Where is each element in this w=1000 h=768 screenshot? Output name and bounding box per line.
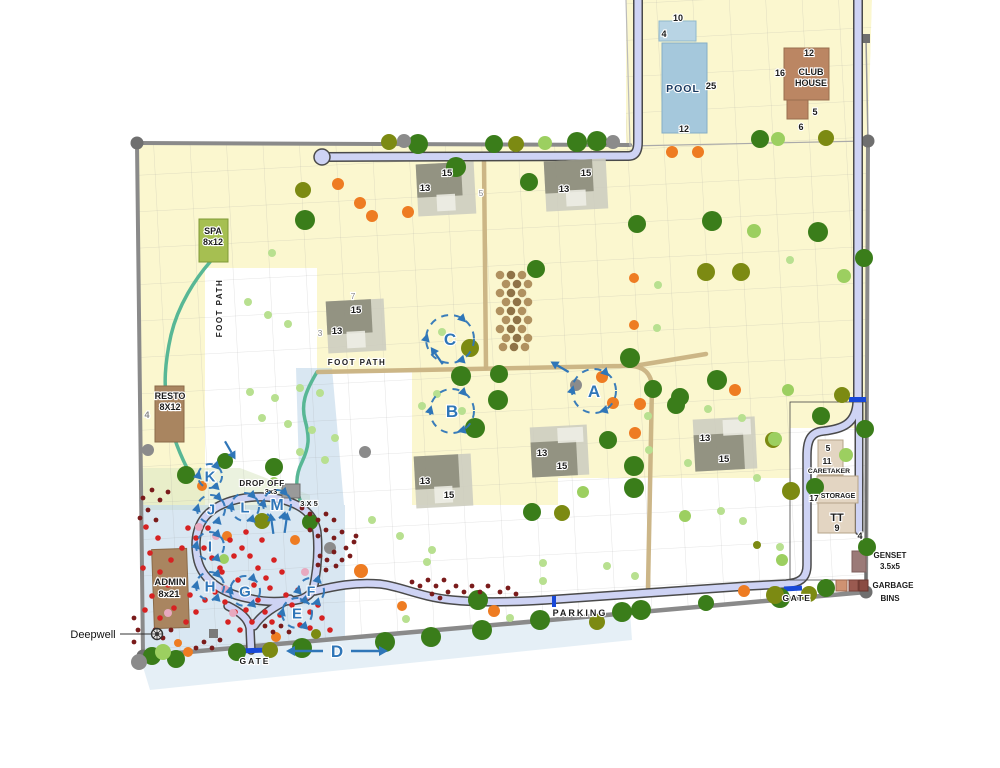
shrub-maroon xyxy=(438,596,443,601)
tree-pg xyxy=(258,414,266,422)
tree-pg xyxy=(717,507,725,515)
tree-dg xyxy=(472,620,492,640)
site-plan-map: SPA8x12RESTO8X124ADMIN8x21POOL1042512121… xyxy=(0,0,1000,768)
label-club: CLUB xyxy=(799,67,824,77)
shrub-maroon xyxy=(434,584,439,589)
shrub-maroon xyxy=(418,584,423,589)
tree-dg xyxy=(530,610,550,630)
tree-dg xyxy=(808,222,828,242)
tree-dg xyxy=(599,431,617,449)
shrub-red xyxy=(205,525,211,531)
tree-pg xyxy=(321,456,329,464)
label-13: 13 xyxy=(700,433,711,444)
gate-bar xyxy=(849,397,866,402)
tree-or xyxy=(692,146,704,158)
tree-ol xyxy=(766,586,784,604)
tree-or xyxy=(629,320,639,330)
tree-dg xyxy=(817,579,835,597)
label-3: 3 xyxy=(318,328,323,338)
shrub-maroon xyxy=(263,624,268,629)
nursery-plant xyxy=(521,343,530,352)
tree-pg xyxy=(644,412,652,420)
tree-lg xyxy=(839,448,853,462)
shrub-maroon xyxy=(325,558,330,563)
shrub-maroon xyxy=(308,512,313,517)
shrub-red xyxy=(319,615,325,621)
building-clubhouse-annex xyxy=(787,100,808,119)
tree-ol xyxy=(782,482,800,500)
tree-ol xyxy=(732,263,750,281)
shrub-maroon xyxy=(442,578,447,583)
tree-pg xyxy=(428,546,436,554)
tree-or xyxy=(629,427,641,439)
tree-or xyxy=(629,273,639,283)
shrub-red xyxy=(243,607,249,613)
tree-dg xyxy=(490,365,508,383)
shrub-maroon xyxy=(287,630,292,635)
shrub-red xyxy=(307,625,313,631)
tree-ol xyxy=(295,182,311,198)
shrub-maroon xyxy=(146,508,151,513)
shrub-pink xyxy=(229,609,237,617)
shrub-red xyxy=(168,557,174,563)
nursery-plant xyxy=(502,316,511,325)
shrub-red xyxy=(249,619,255,625)
label-3-5x5: 3.5x5 xyxy=(880,562,901,571)
tree-pg xyxy=(284,420,292,428)
label-25: 25 xyxy=(706,81,717,92)
tree-pg xyxy=(653,324,661,332)
boundary-node xyxy=(862,135,875,148)
nursery-plant xyxy=(513,334,522,343)
label-house: HOUSE xyxy=(795,78,827,88)
label-caretaker: CARETAKER xyxy=(808,468,850,475)
tree-dg xyxy=(488,390,508,410)
marker-letter-I: I xyxy=(208,538,212,555)
label-gate: GATE xyxy=(240,656,271,666)
foot-path xyxy=(484,160,486,368)
label-13: 13 xyxy=(420,183,431,194)
shrub-maroon xyxy=(430,592,435,597)
shrub-red xyxy=(327,627,333,633)
nursery-plant xyxy=(507,289,516,298)
label-7: 7 xyxy=(351,291,356,301)
shrub-red xyxy=(142,607,148,613)
nursery-plant xyxy=(496,325,505,334)
shrub-maroon xyxy=(446,590,451,595)
shrub-maroon xyxy=(210,646,215,651)
label-15: 15 xyxy=(351,305,362,316)
tree-dg xyxy=(295,210,315,230)
tree-gy xyxy=(397,134,411,148)
label-4: 4 xyxy=(661,29,666,39)
label-15: 15 xyxy=(719,454,730,465)
label-8x12: 8X12 xyxy=(159,402,180,412)
label-genset: GENSET xyxy=(874,551,907,560)
tree-lg xyxy=(837,269,851,283)
shrub-maroon xyxy=(308,528,313,533)
shrub-maroon xyxy=(340,558,345,563)
shrub-maroon xyxy=(332,536,337,541)
tree-pg xyxy=(458,407,466,415)
shrub-red xyxy=(147,550,153,556)
house-porch xyxy=(346,331,365,349)
tree-pg xyxy=(704,405,712,413)
nursery-plant xyxy=(524,298,533,307)
tree-pg xyxy=(264,311,272,319)
nursery-plant xyxy=(524,280,533,289)
tree-or xyxy=(174,639,182,647)
shrub-maroon xyxy=(169,628,174,633)
tree-pg xyxy=(396,532,404,540)
marker-letter-F: F xyxy=(307,583,316,599)
shrub-maroon xyxy=(410,580,415,585)
shrub-red xyxy=(171,605,177,611)
shrub-maroon xyxy=(279,624,284,629)
nursery-plant xyxy=(513,316,522,325)
marker-letter-J: J xyxy=(207,501,215,518)
site-plan-svg: SPA8x12RESTO8X124ADMIN8x21POOL1042512121… xyxy=(0,0,1000,768)
shrub-maroon xyxy=(324,568,329,573)
tree-dg xyxy=(698,595,714,611)
tree-dg xyxy=(702,211,722,231)
shrub-maroon xyxy=(318,554,323,559)
shrub-maroon xyxy=(498,590,503,595)
tree-pg xyxy=(684,459,692,467)
shrub-maroon xyxy=(132,640,137,645)
tree-lg xyxy=(538,136,552,150)
label-parking: PARKING xyxy=(553,608,608,618)
tree-gy xyxy=(131,654,147,670)
tree-lg xyxy=(577,486,589,498)
shrub-maroon xyxy=(218,638,223,643)
tree-or xyxy=(397,601,407,611)
label-12: 12 xyxy=(679,124,689,134)
tree-lg xyxy=(771,132,785,146)
shrub-red xyxy=(247,553,253,559)
shrub-maroon xyxy=(352,540,357,545)
shrub-red xyxy=(255,597,261,603)
shrub-red xyxy=(225,619,231,625)
marker-letter-C: C xyxy=(444,330,456,349)
tree-dg xyxy=(451,366,471,386)
label-foot-path: FOOT PATH xyxy=(215,279,224,338)
label-gate: GATE xyxy=(783,593,812,603)
shrub-red xyxy=(271,557,277,563)
tree-or xyxy=(354,564,368,578)
label-deepwell: Deepwell xyxy=(70,629,115,641)
shrub-maroon xyxy=(138,516,143,521)
shrub-maroon xyxy=(332,518,337,523)
shrub-red xyxy=(149,593,155,599)
label-spa: SPA xyxy=(204,226,222,236)
tree-dg xyxy=(667,396,685,414)
label-4: 4 xyxy=(857,531,862,541)
label-bins: BINS xyxy=(880,594,900,603)
tree-pg xyxy=(296,384,304,392)
tree-dg xyxy=(707,370,727,390)
label-10: 10 xyxy=(673,13,683,23)
label-garbage: GARBAGE xyxy=(873,581,915,590)
label-15: 15 xyxy=(442,168,453,179)
label-8x12: 8x12 xyxy=(203,237,223,247)
tree-pg xyxy=(539,577,547,585)
nursery-plant xyxy=(510,343,519,352)
shrub-red xyxy=(239,545,245,551)
marker-letter-D: D xyxy=(331,642,343,661)
shrub-red xyxy=(222,599,228,605)
marker-letter-L: L xyxy=(240,499,249,516)
label-pool: POOL xyxy=(666,83,700,95)
tree-dg xyxy=(465,418,485,438)
tree-ol xyxy=(508,136,524,152)
tree-dg xyxy=(587,131,607,151)
tree-lg xyxy=(776,554,788,566)
tree-pg xyxy=(402,615,410,623)
label-resto: RESTO xyxy=(155,391,186,401)
shrub-maroon xyxy=(316,563,321,568)
shrub-maroon xyxy=(202,640,207,645)
label-5: 5 xyxy=(826,443,831,453)
shrub-maroon xyxy=(462,590,467,595)
nursery-plant xyxy=(502,298,511,307)
tree-pg xyxy=(776,543,784,551)
shrub-maroon xyxy=(166,490,171,495)
tree-dg xyxy=(375,632,395,652)
shrub-maroon xyxy=(158,498,163,503)
tree-dg xyxy=(485,135,503,153)
tree-or xyxy=(634,398,646,410)
nursery-plant xyxy=(507,325,516,334)
tree-dg xyxy=(856,420,874,438)
nursery-plant xyxy=(518,307,527,316)
shrub-red xyxy=(193,535,199,541)
parking-tick xyxy=(552,596,556,607)
tree-ol xyxy=(554,505,570,521)
nursery-plant xyxy=(518,289,527,298)
shrub-red xyxy=(251,582,257,588)
tree-gy xyxy=(606,135,620,149)
tree-pg xyxy=(296,448,304,456)
house-porch xyxy=(557,427,583,443)
road-culdesac xyxy=(314,149,330,165)
shrub-red xyxy=(219,569,225,575)
label-8x21: 8x21 xyxy=(158,589,180,600)
shrub-red xyxy=(263,575,269,581)
tree-ol xyxy=(834,387,850,403)
tree-pg xyxy=(786,256,794,264)
shrub-red xyxy=(283,592,289,598)
nursery-plant xyxy=(513,298,522,307)
tree-pg xyxy=(244,298,252,306)
tree-ol xyxy=(461,339,479,357)
shrub-red xyxy=(269,619,275,625)
tree-pg xyxy=(738,414,746,422)
shrub-maroon xyxy=(354,534,359,539)
shrub-pink xyxy=(164,609,172,617)
building-garbage-3 xyxy=(859,580,868,591)
building-garbage-2 xyxy=(849,580,858,591)
label-9: 9 xyxy=(834,523,839,533)
tree-or xyxy=(354,197,366,209)
nursery-plant xyxy=(518,325,527,334)
tree-ol xyxy=(311,629,321,639)
tree-pg xyxy=(739,517,747,525)
tree-ol xyxy=(381,134,397,150)
shrub-red xyxy=(157,569,163,575)
tree-pg xyxy=(645,446,653,454)
shrub-red xyxy=(187,592,193,598)
nursery-plant xyxy=(502,280,511,289)
shrub-red xyxy=(140,565,146,571)
tree-dg xyxy=(624,478,644,498)
shrub-red xyxy=(267,585,273,591)
nursery-plant xyxy=(496,289,505,298)
tree-ol xyxy=(753,541,761,549)
shrub-maroon xyxy=(348,554,353,559)
tree-dg xyxy=(812,407,830,425)
shrub-maroon xyxy=(316,534,321,539)
shrub-maroon xyxy=(136,628,141,633)
tree-dg xyxy=(624,456,644,476)
tree-dg xyxy=(421,627,441,647)
shrub-red xyxy=(243,529,249,535)
shrub-red xyxy=(255,565,261,571)
shrub-maroon xyxy=(334,564,339,569)
shrub-red xyxy=(227,537,233,543)
tree-pg xyxy=(316,389,324,397)
shrub-red xyxy=(201,545,207,551)
tree-or xyxy=(738,585,750,597)
tree-dg xyxy=(523,503,541,521)
nursery-plant xyxy=(507,271,516,280)
tree-pg xyxy=(506,614,514,622)
tree-lg xyxy=(782,384,794,396)
shrub-red xyxy=(193,609,199,615)
tree-or xyxy=(729,384,741,396)
nursery-plant xyxy=(502,334,511,343)
shrub-maroon xyxy=(344,546,349,551)
marker-letter-G: G xyxy=(239,583,251,600)
shrub-red xyxy=(185,525,191,531)
tree-pg xyxy=(539,559,547,567)
nursery-plant xyxy=(499,343,508,352)
tree-dg xyxy=(631,600,651,620)
tree-dg xyxy=(620,348,640,368)
tree-pg xyxy=(418,402,426,410)
label-13: 13 xyxy=(420,476,431,487)
label-5: 5 xyxy=(812,107,817,117)
label-5: 5 xyxy=(479,188,484,198)
label-11: 11 xyxy=(823,456,832,466)
tree-ol xyxy=(697,263,715,281)
shrub-red xyxy=(179,545,185,551)
shrub-maroon xyxy=(324,528,329,533)
shrub-maroon xyxy=(324,512,329,517)
tree-or xyxy=(332,178,344,190)
building-garbage-1 xyxy=(836,580,847,591)
shrub-maroon xyxy=(332,550,337,555)
tree-lg xyxy=(768,432,782,446)
tree-dg xyxy=(408,134,428,154)
label-admin: ADMIN xyxy=(154,577,185,588)
tree-or xyxy=(366,210,378,222)
shrub-pink xyxy=(301,568,309,576)
label-6: 6 xyxy=(798,122,803,132)
shrub-maroon xyxy=(271,630,276,635)
shrub-maroon xyxy=(514,592,519,597)
shrub-red xyxy=(279,569,285,575)
tree-ol xyxy=(818,130,834,146)
tree-or xyxy=(666,146,678,158)
marker-letter-A: A xyxy=(588,382,600,401)
tree-pg xyxy=(284,320,292,328)
label-3-x-5: 3 X 5 xyxy=(300,499,318,508)
shrub-pink xyxy=(195,523,203,531)
shrub-red xyxy=(237,627,243,633)
boundary-node xyxy=(131,137,144,150)
tree-dg xyxy=(855,249,873,267)
tree-dg xyxy=(177,466,195,484)
tree-lg xyxy=(747,224,761,238)
shrub-maroon xyxy=(316,518,321,523)
tree-pg xyxy=(631,572,639,580)
shrub-maroon xyxy=(132,616,137,621)
label-17: 17 xyxy=(809,493,819,503)
tree-gy xyxy=(359,446,371,458)
tree-dg xyxy=(751,130,769,148)
label-16: 16 xyxy=(775,68,785,78)
tree-lg xyxy=(155,644,171,660)
tree-pg xyxy=(331,434,339,442)
tree-lg xyxy=(679,510,691,522)
marker-letter-H: H xyxy=(205,578,216,595)
nursery-plant xyxy=(507,307,516,316)
label-15: 15 xyxy=(557,461,568,472)
tree-pg xyxy=(271,394,279,402)
label-15: 15 xyxy=(581,168,592,179)
utility-square xyxy=(209,629,218,638)
shrub-red xyxy=(235,577,241,583)
tree-dg xyxy=(612,602,632,622)
tree-pg xyxy=(603,562,611,570)
tree-dg xyxy=(644,380,662,398)
tree-dg xyxy=(527,260,545,278)
tree-pg xyxy=(368,516,376,524)
nursery-plant xyxy=(524,316,533,325)
label-12: 12 xyxy=(804,48,814,58)
shrub-maroon xyxy=(470,584,475,589)
marker-letter-B: B xyxy=(446,402,458,421)
tree-pg xyxy=(268,249,276,257)
label-drop-off: DROP OFF xyxy=(239,479,284,488)
shrub-red xyxy=(183,619,189,625)
nursery-plant xyxy=(496,307,505,316)
shrub-red xyxy=(231,553,237,559)
tree-or xyxy=(402,206,414,218)
shrub-red xyxy=(259,537,265,543)
tree-dg xyxy=(628,215,646,233)
tree-or xyxy=(488,605,500,617)
shrub-maroon xyxy=(454,584,459,589)
shrub-red xyxy=(157,615,163,621)
tree-lg xyxy=(219,554,229,564)
label-foot-path: FOOT PATH xyxy=(328,358,387,367)
shrub-maroon xyxy=(194,646,199,651)
tree-pg xyxy=(753,474,761,482)
tree-pg xyxy=(423,558,431,566)
marker-letter-E: E xyxy=(292,605,302,622)
